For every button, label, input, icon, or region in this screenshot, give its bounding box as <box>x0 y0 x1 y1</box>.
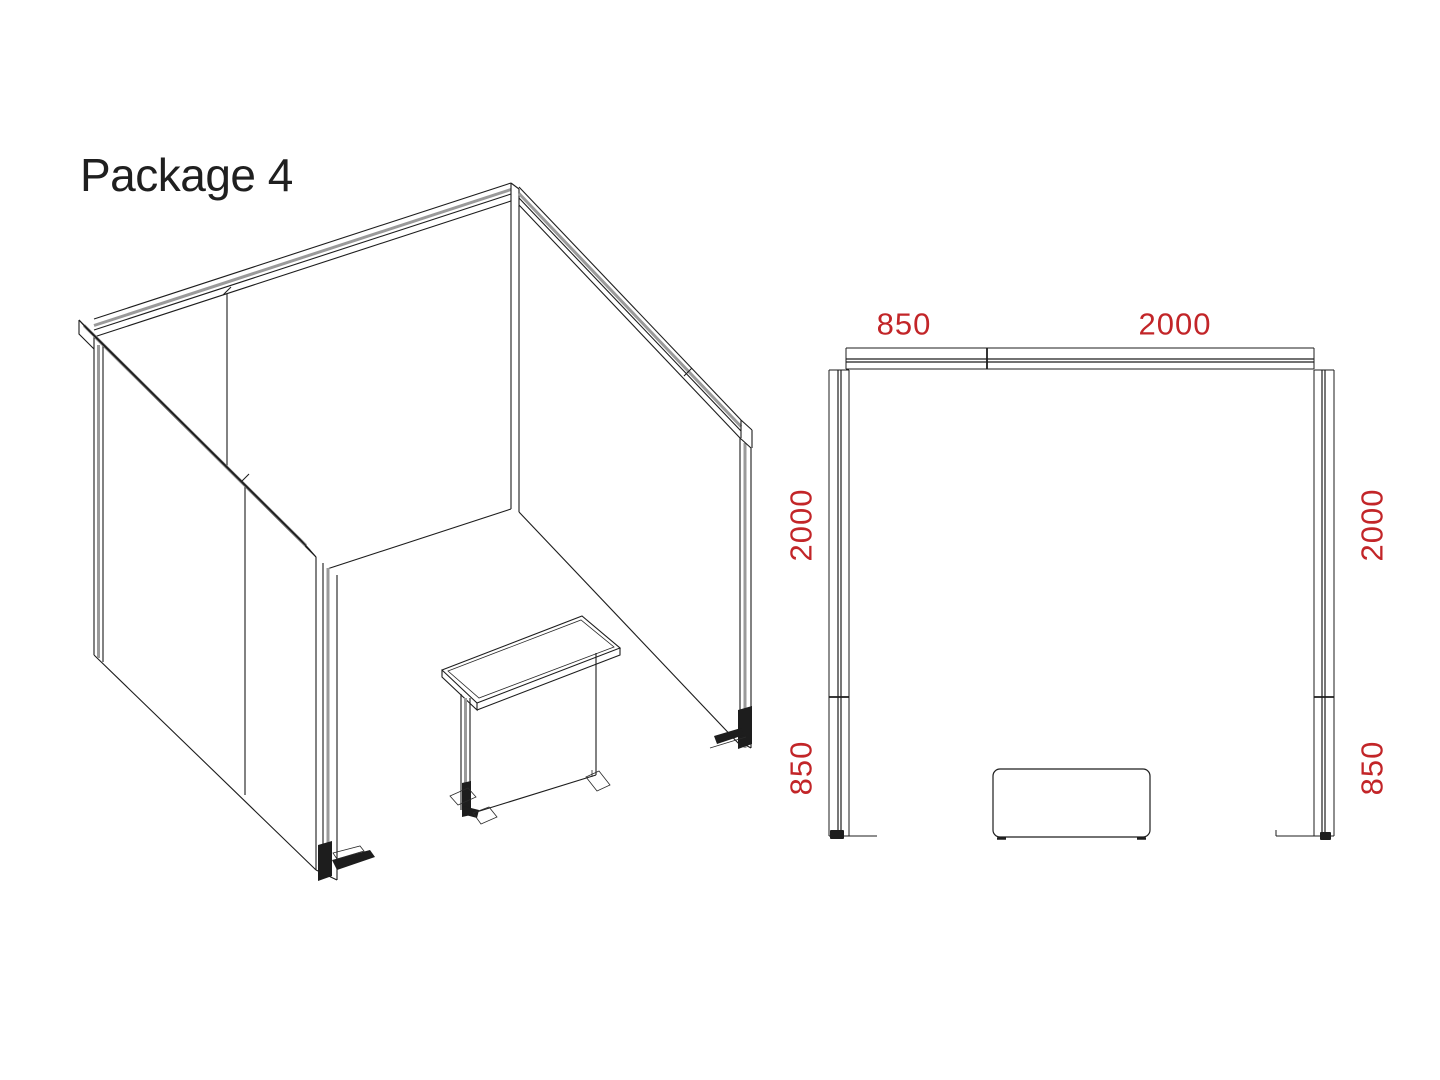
plan-view: 850 2000 2000 850 2000 850 <box>784 307 1390 841</box>
plan-foot-left <box>830 830 877 839</box>
dimension-850-left: 850 <box>784 741 819 796</box>
plan-left-wall <box>829 370 877 839</box>
dimension-850-right: 850 <box>1355 741 1390 796</box>
plan-back-wall <box>846 348 1314 369</box>
dimension-850-top: 850 <box>877 307 932 342</box>
counter-table <box>442 616 620 824</box>
dimension-2000-right: 2000 <box>1355 489 1390 562</box>
plan-foot-right <box>1276 830 1331 840</box>
wall-foot-left <box>318 841 375 881</box>
isometric-view <box>79 183 752 881</box>
plan-right-wall <box>1276 370 1334 840</box>
table-foot-left <box>450 781 497 824</box>
plan-counter-table <box>993 769 1150 839</box>
table-foot-right <box>586 770 610 791</box>
dimension-2000-left: 2000 <box>784 489 819 562</box>
dimension-2000-top: 2000 <box>1139 307 1212 342</box>
booth-diagram-canvas: 850 2000 2000 850 2000 850 <box>0 0 1440 1080</box>
